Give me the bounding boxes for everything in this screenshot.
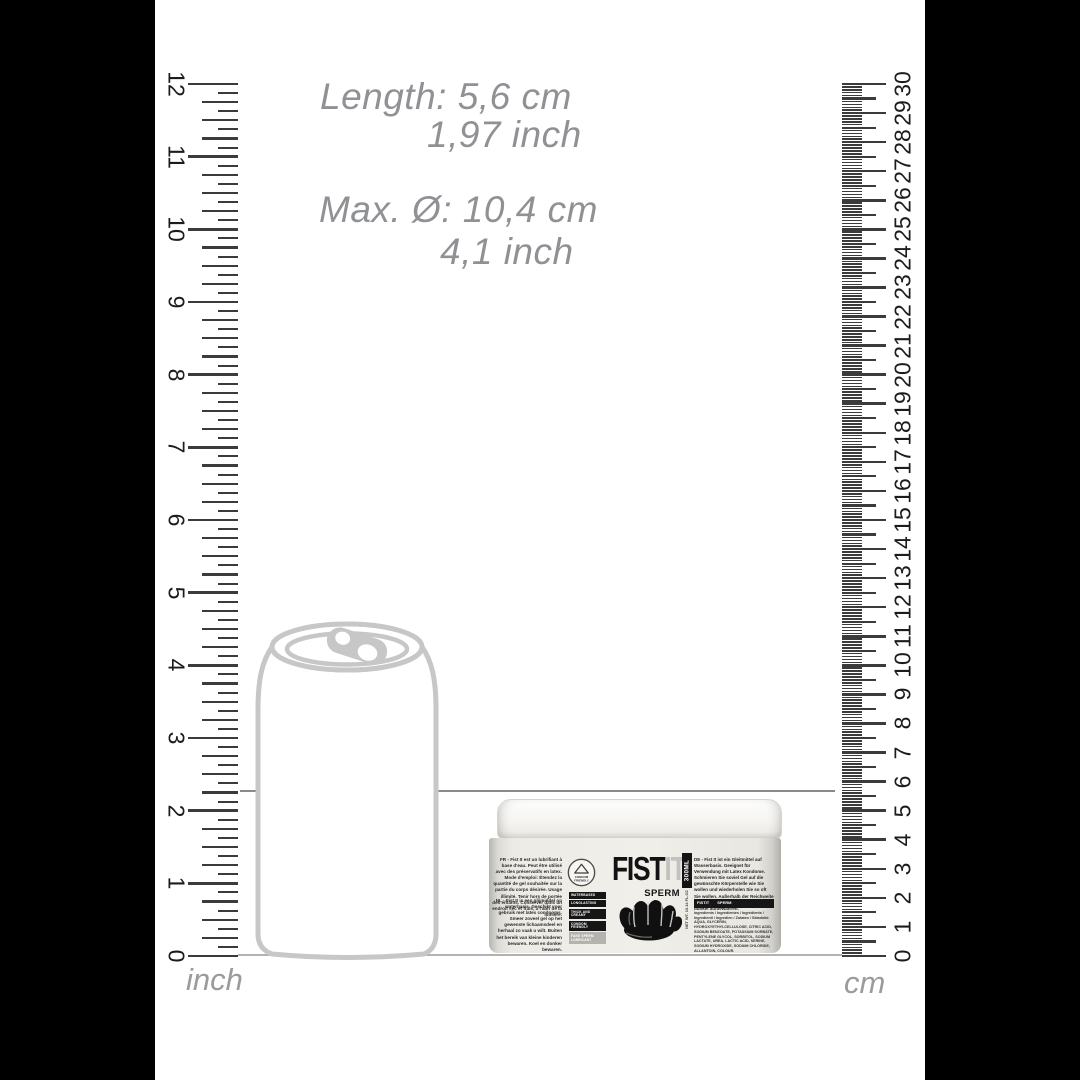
ruler-tick [842, 95, 862, 97]
ruler-tick [202, 501, 238, 503]
ruler-tick [842, 917, 862, 919]
ruler-number: 14 [890, 536, 917, 562]
ruler-tick [842, 391, 862, 393]
ruler-tick [842, 261, 862, 263]
ruler-tick [842, 659, 862, 661]
ruler-tick [842, 906, 862, 908]
ruler-tick [842, 929, 862, 931]
ruler-tick [842, 278, 862, 280]
fist-graphic [618, 897, 682, 942]
ruler-tick [218, 419, 238, 421]
cm-ruler-label: cm [844, 967, 885, 998]
ruler-tick [188, 955, 238, 958]
ruler-tick [842, 838, 886, 841]
ruler-tick [842, 822, 862, 824]
ruler-tick [842, 136, 862, 138]
ruler-tick [842, 775, 862, 777]
ruler-tick [842, 560, 862, 562]
ruler-tick [842, 751, 886, 754]
ruler-tick [842, 191, 862, 193]
ruler-number: 1 [163, 877, 190, 890]
ruler-tick [842, 656, 862, 658]
net-weight-text: NET WT. 10.14 FL.OZ [684, 890, 689, 929]
ruler-tick [842, 809, 886, 812]
ruler-tick [842, 537, 862, 539]
ruler-tick [842, 769, 862, 771]
ruler-tick [842, 310, 862, 312]
ruler-tick [842, 859, 862, 861]
ruler-tick [218, 346, 238, 348]
ruler-tick [842, 737, 876, 739]
ruler-number: 7 [890, 746, 917, 759]
ruler-tick [842, 592, 876, 594]
ruler-tick [842, 641, 862, 643]
ruler-tick [842, 496, 862, 498]
badge-fake-sperm: FAKE SPERM LUBRICANT [569, 932, 606, 944]
ruler-number: 15 [890, 507, 917, 533]
ruler-tick [842, 522, 862, 524]
ruler-tick [842, 780, 886, 783]
ruler-number: 5 [890, 804, 917, 817]
ruler-tick [842, 856, 862, 858]
ruler-tick [842, 330, 876, 332]
ruler-tick [842, 237, 862, 239]
ruler-tick [188, 373, 238, 376]
ruler-number: 27 [890, 158, 917, 184]
ruler-tick [218, 891, 238, 893]
ruler-tick [842, 923, 862, 925]
ruler-tick [842, 223, 862, 225]
ruler-tick [842, 711, 862, 713]
ruler-tick [202, 682, 238, 684]
ruler-tick [842, 484, 862, 486]
ruler-tick [842, 589, 862, 591]
ruler-tick [842, 228, 886, 231]
ruler-number: 22 [890, 304, 917, 330]
ruler-tick [218, 474, 238, 476]
page: Length: 5,6 cm 1,97 inch Max. Ø: 10,4 cm… [0, 0, 1080, 1080]
ruler-tick [842, 473, 862, 475]
ruler-tick [842, 130, 862, 132]
ruler-tick [202, 864, 238, 866]
ruler-tick [218, 128, 238, 130]
ruler-tick [842, 386, 862, 388]
ruler-number: 3 [890, 862, 917, 875]
ruler-tick [842, 97, 876, 99]
brand-logo: FISTIT [612, 852, 668, 888]
ruler-number: 8 [163, 368, 190, 381]
ruler-tick [842, 470, 862, 472]
ruler-tick [218, 782, 238, 784]
ruler-tick [842, 173, 862, 175]
ruler-tick [218, 728, 238, 730]
ruler-tick [842, 435, 862, 437]
ruler-tick [218, 692, 238, 694]
ruler-tick [842, 664, 886, 667]
ruler-tick [842, 234, 862, 236]
ruler-tick [842, 359, 876, 361]
ruler-tick [842, 202, 862, 204]
ruler-tick [218, 873, 238, 875]
ruler-tick [202, 719, 238, 721]
ruler-tick [842, 255, 862, 257]
ruler-tick [842, 168, 862, 170]
ruler-tick [842, 380, 862, 382]
ruler-tick [842, 266, 862, 268]
ruler-number: 29 [890, 100, 917, 126]
ruler-tick [842, 281, 862, 283]
ruler-tick [842, 348, 862, 350]
ruler-tick [842, 615, 862, 617]
ruler-tick [218, 310, 238, 312]
ruler-tick [202, 319, 238, 321]
ruler-tick [842, 845, 862, 847]
ruler-tick [202, 755, 238, 757]
ruler-tick [842, 511, 862, 513]
ruler-tick [842, 667, 862, 669]
ruler-tick [842, 595, 862, 597]
ruler-tick [842, 150, 862, 152]
ruler-tick [842, 749, 862, 751]
heading-variant: SPERM [717, 900, 731, 905]
ruler-tick [842, 464, 862, 466]
ruler-tick [842, 554, 862, 556]
volume-bar: 300ML [682, 853, 692, 888]
ruler-tick [842, 720, 862, 722]
ruler-tick [842, 903, 862, 905]
ruler-tick [842, 729, 862, 731]
ruler-tick [842, 115, 862, 117]
condom-friendly-seal: CONDOM FRIENDLY [567, 858, 596, 887]
ruler-tick [842, 313, 862, 315]
ruler-tick [842, 284, 862, 286]
ruler-tick [842, 354, 862, 356]
ruler-tick [842, 731, 862, 733]
length-inch-text: 1,97 inch [427, 116, 582, 153]
ruler-tick [842, 714, 862, 716]
ruler-tick [218, 655, 238, 657]
ruler-tick [842, 604, 862, 606]
ruler-tick [842, 761, 862, 763]
ruler-tick [842, 935, 862, 937]
ruler-tick [202, 846, 238, 848]
ruler-tick [842, 446, 876, 448]
ruler-tick [842, 897, 886, 900]
ruler-tick [842, 344, 886, 347]
ruler-tick [842, 920, 862, 922]
ruler-tick [202, 355, 238, 357]
ruler-tick [842, 740, 862, 742]
ruler-tick [842, 705, 862, 707]
ruler-tick [842, 545, 862, 547]
ruler-tick [842, 798, 862, 800]
ruler-tick [202, 828, 238, 830]
ruler-tick [218, 165, 238, 167]
ruler-tick [842, 423, 862, 425]
ruler-tick [842, 475, 876, 477]
ruler-tick [842, 397, 862, 399]
ruler-tick [218, 328, 238, 330]
ruler-tick [842, 176, 862, 178]
ruler-tick [218, 564, 238, 566]
ruler-tick [842, 947, 862, 949]
ruler-tick [842, 734, 862, 736]
ruler-tick [842, 682, 862, 684]
ruler-tick [202, 265, 238, 267]
ruler-tick [842, 333, 862, 335]
ruler-tick [842, 813, 862, 815]
ruler-tick [842, 502, 862, 504]
ruler-number: 24 [890, 246, 917, 272]
ruler-tick [842, 577, 886, 580]
ruler-tick [842, 415, 862, 417]
ruler-tick [842, 653, 862, 655]
ruler-tick [842, 426, 862, 428]
brand-fist: FIST [612, 850, 664, 887]
ruler-tick [188, 301, 238, 304]
ruler-tick [842, 452, 862, 454]
ruler-tick [842, 540, 862, 542]
ruler-tick [202, 246, 238, 248]
ruler-tick [842, 635, 886, 638]
ruler-tick [842, 240, 862, 242]
ruler-tick [218, 274, 238, 276]
ruler-tick [842, 205, 862, 207]
ruler-tick [842, 755, 862, 757]
ruler-tick [842, 257, 886, 260]
ruler-tick [842, 848, 862, 850]
ruler-tick [218, 147, 238, 149]
ruler-number: 4 [890, 833, 917, 846]
ruler-tick [842, 679, 876, 681]
badge-fake-sperm-line2: LUBRICANT [571, 938, 604, 942]
ruler-tick [842, 252, 862, 254]
ruler-tick [218, 92, 238, 94]
ruler-tick [842, 548, 886, 551]
ruler-tick [218, 383, 238, 385]
ruler-tick [842, 479, 862, 481]
ruler-tick [842, 949, 862, 951]
ruler-tick [842, 932, 862, 934]
ruler-number: 1 [890, 921, 917, 934]
ruler-tick [842, 383, 862, 385]
ruler-tick [202, 410, 238, 412]
ruler-tick [842, 159, 862, 161]
ruler-tick [842, 243, 876, 245]
ruler-tick [842, 217, 862, 219]
ruler-tick [842, 676, 862, 678]
ruler-tick [842, 644, 862, 646]
ruler-tick [842, 107, 862, 109]
ruler-tick [842, 208, 862, 210]
diameter-cm-text: Max. Ø: 10,4 cm [319, 191, 598, 228]
ruler-tick [842, 127, 876, 129]
ruler-tick [842, 351, 862, 353]
ruler-tick [842, 441, 862, 443]
ruler-number: 8 [890, 717, 917, 730]
ruler-tick [202, 573, 238, 575]
ruler-tick [218, 401, 238, 403]
ruler-number: 19 [890, 391, 917, 417]
ruler-tick [202, 464, 238, 466]
ruler-tick [842, 647, 862, 649]
ruler-tick [842, 722, 886, 725]
ruler-number: 4 [163, 659, 190, 672]
ruler-tick [218, 510, 238, 512]
ruler-tick [218, 292, 238, 294]
ruler-tick [842, 162, 862, 164]
ruler-tick [842, 609, 862, 611]
ruler-tick [842, 516, 862, 518]
ruler-tick [202, 773, 238, 775]
ruler-tick [218, 219, 238, 221]
ruler-tick [218, 928, 238, 930]
ruler-tick [842, 165, 862, 167]
ruler-tick [842, 342, 862, 344]
ruler-tick [842, 708, 876, 710]
ruler-tick [842, 373, 886, 376]
ruler-tick [842, 420, 862, 422]
ruler-tick [188, 446, 238, 449]
ruler-tick [842, 133, 862, 135]
ruler-number: 0 [890, 950, 917, 963]
ruler-tick [842, 606, 886, 609]
ruler-tick [842, 92, 862, 94]
ruler-tick [842, 586, 862, 588]
ruler-number: 10 [163, 217, 190, 243]
ruler-tick [218, 256, 238, 258]
ruler-tick [218, 455, 238, 457]
ruler-tick [188, 882, 238, 885]
ruler-tick [842, 293, 862, 295]
ruler-tick [842, 804, 862, 806]
ruler-number: 12 [890, 594, 917, 620]
ruler-tick [842, 543, 862, 545]
ruler-tick [842, 388, 876, 390]
ruler-tick [842, 819, 862, 821]
ruler-tick [218, 746, 238, 748]
ruler-tick [842, 853, 876, 855]
ruler-tick [842, 467, 862, 469]
ruler-tick [842, 458, 862, 460]
volume-text: 300ML [684, 860, 691, 882]
ruler-tick [842, 862, 862, 864]
ruler-tick [842, 188, 862, 190]
ruler-tick [842, 833, 862, 835]
ruler-tick [188, 83, 238, 86]
ruler-tick [842, 842, 862, 844]
ruler-tick [842, 601, 862, 603]
label-heading-bar: FISTITSPERM [694, 899, 774, 908]
ruler-tick [842, 621, 876, 623]
ruler-tick [842, 455, 862, 457]
ruler-tick [842, 938, 862, 940]
ruler-tick [842, 182, 862, 184]
ruler-tick [218, 601, 238, 603]
ruler-tick [842, 194, 862, 196]
ruler-tick [188, 519, 238, 522]
ruler-number: 26 [890, 187, 917, 213]
ruler-tick [842, 627, 862, 629]
ruler-tick [842, 673, 862, 675]
ruler-tick [842, 851, 862, 853]
ruler-tick [842, 269, 862, 271]
ruler-tick [842, 104, 862, 106]
ruler-tick [218, 365, 238, 367]
ruler-number: 16 [890, 478, 917, 504]
ruler-tick [202, 392, 238, 394]
ruler-tick [842, 315, 886, 318]
ruler-tick [842, 197, 862, 199]
ruler-tick [842, 499, 862, 501]
ruler-tick [842, 801, 862, 803]
ruler-tick [842, 490, 886, 493]
ruler-tick [842, 508, 862, 510]
ruler-tick [842, 371, 862, 373]
ruler-tick [842, 633, 862, 635]
ruler-tick [842, 630, 862, 632]
ruler-tick [842, 400, 862, 402]
ruler-tick [842, 319, 862, 321]
ruler-tick [842, 952, 862, 954]
ruler-tick [842, 417, 876, 419]
ruler-tick [842, 882, 876, 884]
ruler-tick [842, 557, 862, 559]
ruler-tick [842, 697, 862, 699]
ruler-tick [202, 428, 238, 430]
ruler-tick [218, 801, 238, 803]
ruler-tick [842, 574, 862, 576]
ruler-tick [842, 766, 876, 768]
ruler-tick [218, 673, 238, 675]
ruler-tick [218, 492, 238, 494]
badge-waterbased: WATERBASED [569, 892, 606, 899]
ruler-tick [842, 263, 862, 265]
ruler-tick [842, 301, 876, 303]
ruler-tick [218, 710, 238, 712]
ruler-tick [842, 900, 862, 902]
ruler-tick [202, 937, 238, 939]
can-body-outline [258, 647, 436, 958]
beverage-can-outline [250, 616, 446, 960]
ruler-number: 6 [890, 775, 917, 788]
ruler-tick [842, 295, 862, 297]
ruler-number: 9 [163, 296, 190, 309]
ruler-tick [842, 109, 862, 111]
ruler-tick [202, 119, 238, 121]
ruler-tick [842, 246, 862, 248]
ruler-tick [842, 307, 862, 309]
ruler-tick [842, 746, 862, 748]
ruler-tick [842, 412, 862, 414]
ruler-tick [842, 650, 876, 652]
ruler-tick [202, 483, 238, 485]
ruler-tick [842, 915, 862, 917]
ruler-tick [202, 555, 238, 557]
ruler-tick [842, 868, 886, 871]
ruler-tick [842, 211, 862, 213]
ruler-tick [842, 688, 862, 690]
ruler-tick [842, 141, 886, 144]
ruler-tick [218, 201, 238, 203]
ruler-tick [842, 885, 862, 887]
ruler-tick [202, 791, 238, 793]
ruler-tick [842, 717, 862, 719]
ruler-tick [842, 955, 886, 958]
ruler-tick [842, 685, 862, 687]
ruler-tick [842, 179, 862, 181]
ruler-tick [842, 444, 862, 446]
